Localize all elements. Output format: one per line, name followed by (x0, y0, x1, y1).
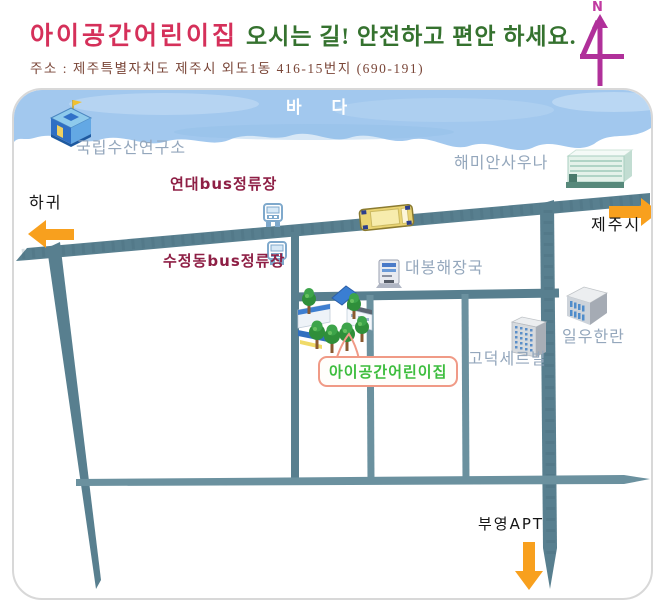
page-title-line: 아이공간어린이집오시는 길! 안전하고 편안 하세요. (30, 16, 577, 52)
sauna-building-icon (564, 148, 634, 192)
map-canvas: 바 다 (12, 88, 653, 600)
restaurant-icon (376, 256, 403, 289)
iluhanlan-label: 일우한란 (562, 328, 625, 346)
left-arrow-icon (28, 220, 74, 248)
sujeong-bus-stop-label: 수정동bus정류장 (163, 253, 285, 270)
address-line: 주소 : 제주특별자치도 제주시 외도1동 416-15번지 (690-191) (30, 57, 424, 77)
hagwi-direction-label: 하귀 (29, 194, 62, 212)
yeondae-bus-stop-label: 연대bus정류장 (170, 176, 277, 193)
road-left-diagonal (47, 242, 101, 589)
north-compass-icon (578, 14, 628, 88)
sea-label: 바 다 (286, 99, 359, 118)
page-subtitle: 오시는 길! 안전하고 편안 하세요. (246, 24, 577, 49)
sauna-label: 해미안사우나 (454, 154, 548, 172)
buyeong-apt-label: 부영APT (478, 516, 544, 533)
bus-stop-icon (261, 201, 285, 229)
apartment-cube-icon (564, 284, 609, 327)
restaurant-label: 대봉해장국 (405, 259, 484, 277)
road-vertical-3 (465, 294, 466, 482)
fisheries-label: 국립수산연구소 (76, 139, 186, 157)
down-arrow-icon (515, 542, 543, 590)
page-title: 아이공간어린이집 (30, 23, 238, 50)
daycare-label-box: 아이공간어린이집 (318, 356, 458, 387)
godeok-label: 고덕세르빌 (468, 350, 547, 368)
road-bottom-horizontal (76, 475, 650, 486)
compass-north-label: N (592, 0, 603, 15)
jeju-city-direction-label: 제주시 (591, 216, 641, 234)
